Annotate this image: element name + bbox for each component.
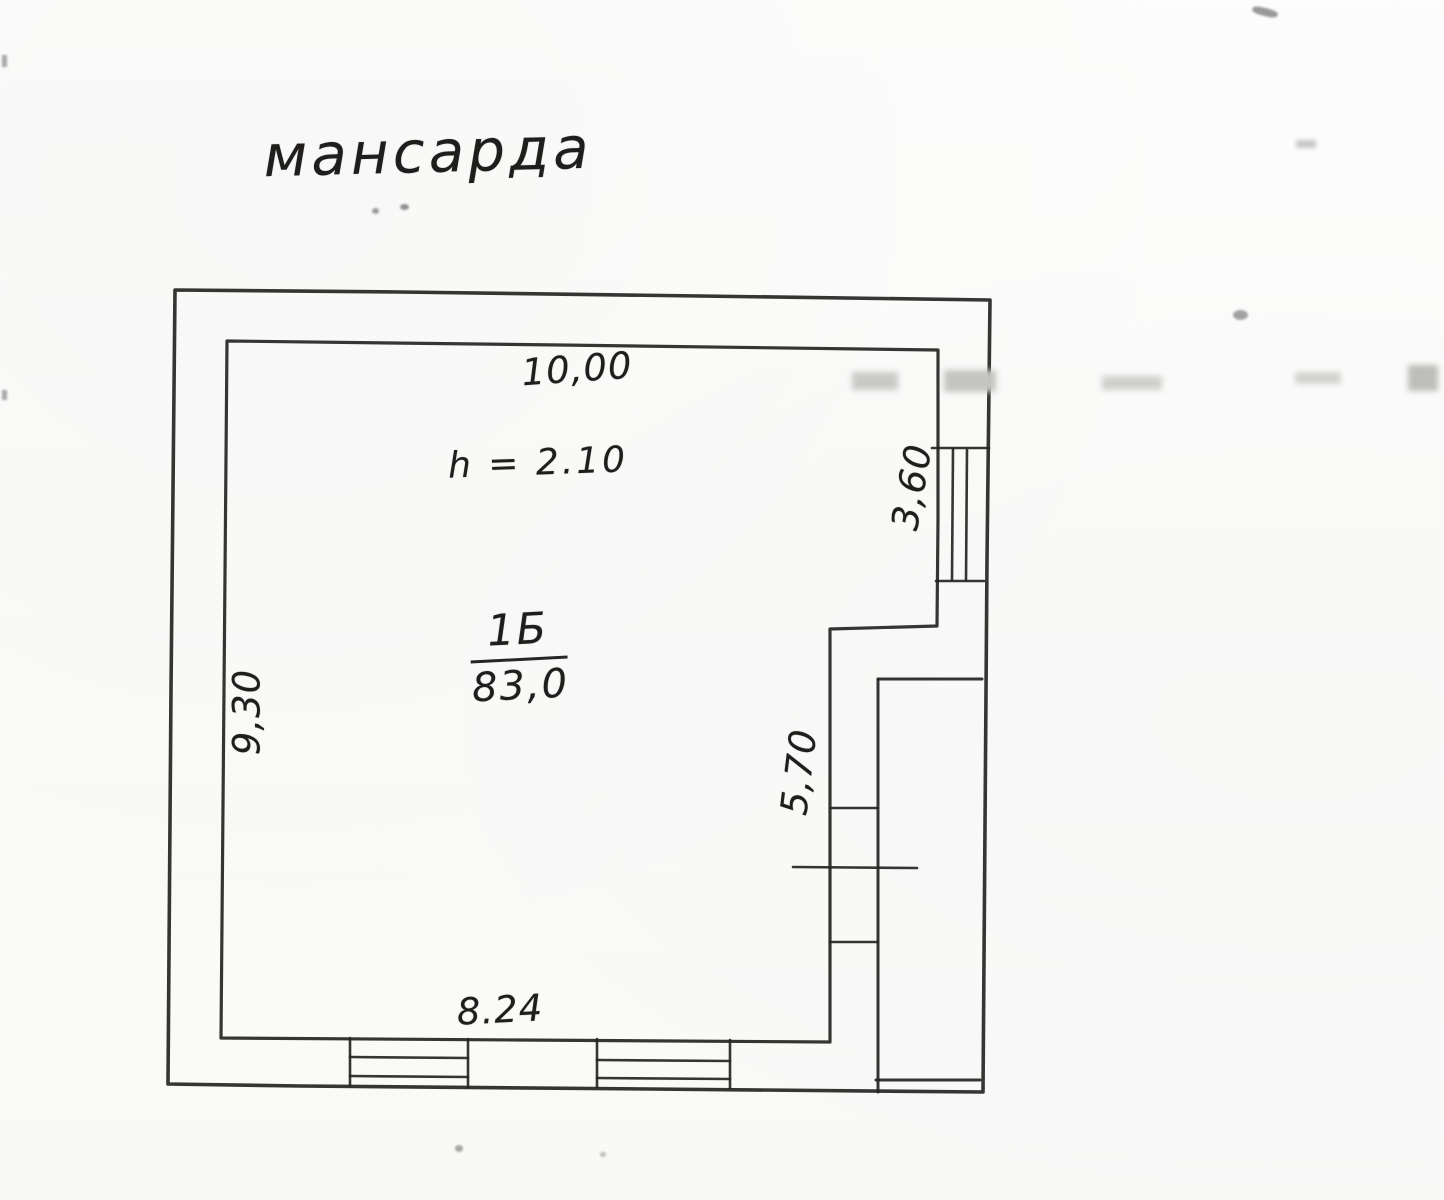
floor-plan-drawing: [0, 0, 1444, 1200]
bottom-window-2-glazing: [597, 1060, 730, 1079]
plan-title: мансарда: [263, 114, 594, 191]
right-window-glazing: [952, 449, 967, 580]
dimension-bottom: 8.24: [456, 986, 545, 1033]
dimension-top: 10,00: [520, 344, 634, 395]
bottom-window-1-glazing: [350, 1057, 468, 1077]
bottom-window-1-ends: [350, 1038, 468, 1087]
room-label: 1Б 83,0: [468, 603, 570, 712]
outer-wall: [168, 290, 990, 1092]
scanned-floor-plan-page: мансарда 10,00 h = 2.10 1Б 83,0 9,30 3,6…: [0, 0, 1444, 1200]
room-area: 83,0: [471, 658, 570, 711]
wall-cross-line: [793, 867, 917, 868]
bottom-window-2-ends: [597, 1039, 730, 1088]
dimension-left: 9,30: [226, 669, 269, 755]
ceiling-height-note: h = 2.10: [447, 439, 628, 486]
room-number: 1Б: [468, 603, 568, 664]
